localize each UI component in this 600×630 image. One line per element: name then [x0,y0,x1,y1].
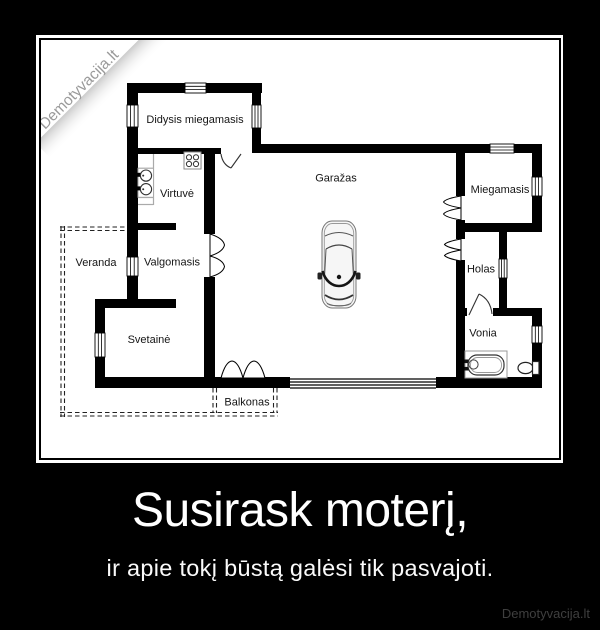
svg-text:Virtuvė: Virtuvė [160,188,194,200]
svg-text:Garažas: Garažas [315,173,357,185]
svg-text:Miegamasis: Miegamasis [471,184,530,196]
svg-text:Didysis miegamasis: Didysis miegamasis [146,114,244,126]
svg-text:Holas: Holas [467,264,496,276]
svg-text:Valgomasis: Valgomasis [144,257,201,269]
svg-text:Vonia: Vonia [469,328,497,340]
svg-text:Balkonas: Balkonas [224,397,270,409]
svg-text:Veranda: Veranda [76,257,118,269]
svg-text:Svetainė: Svetainė [128,334,171,346]
